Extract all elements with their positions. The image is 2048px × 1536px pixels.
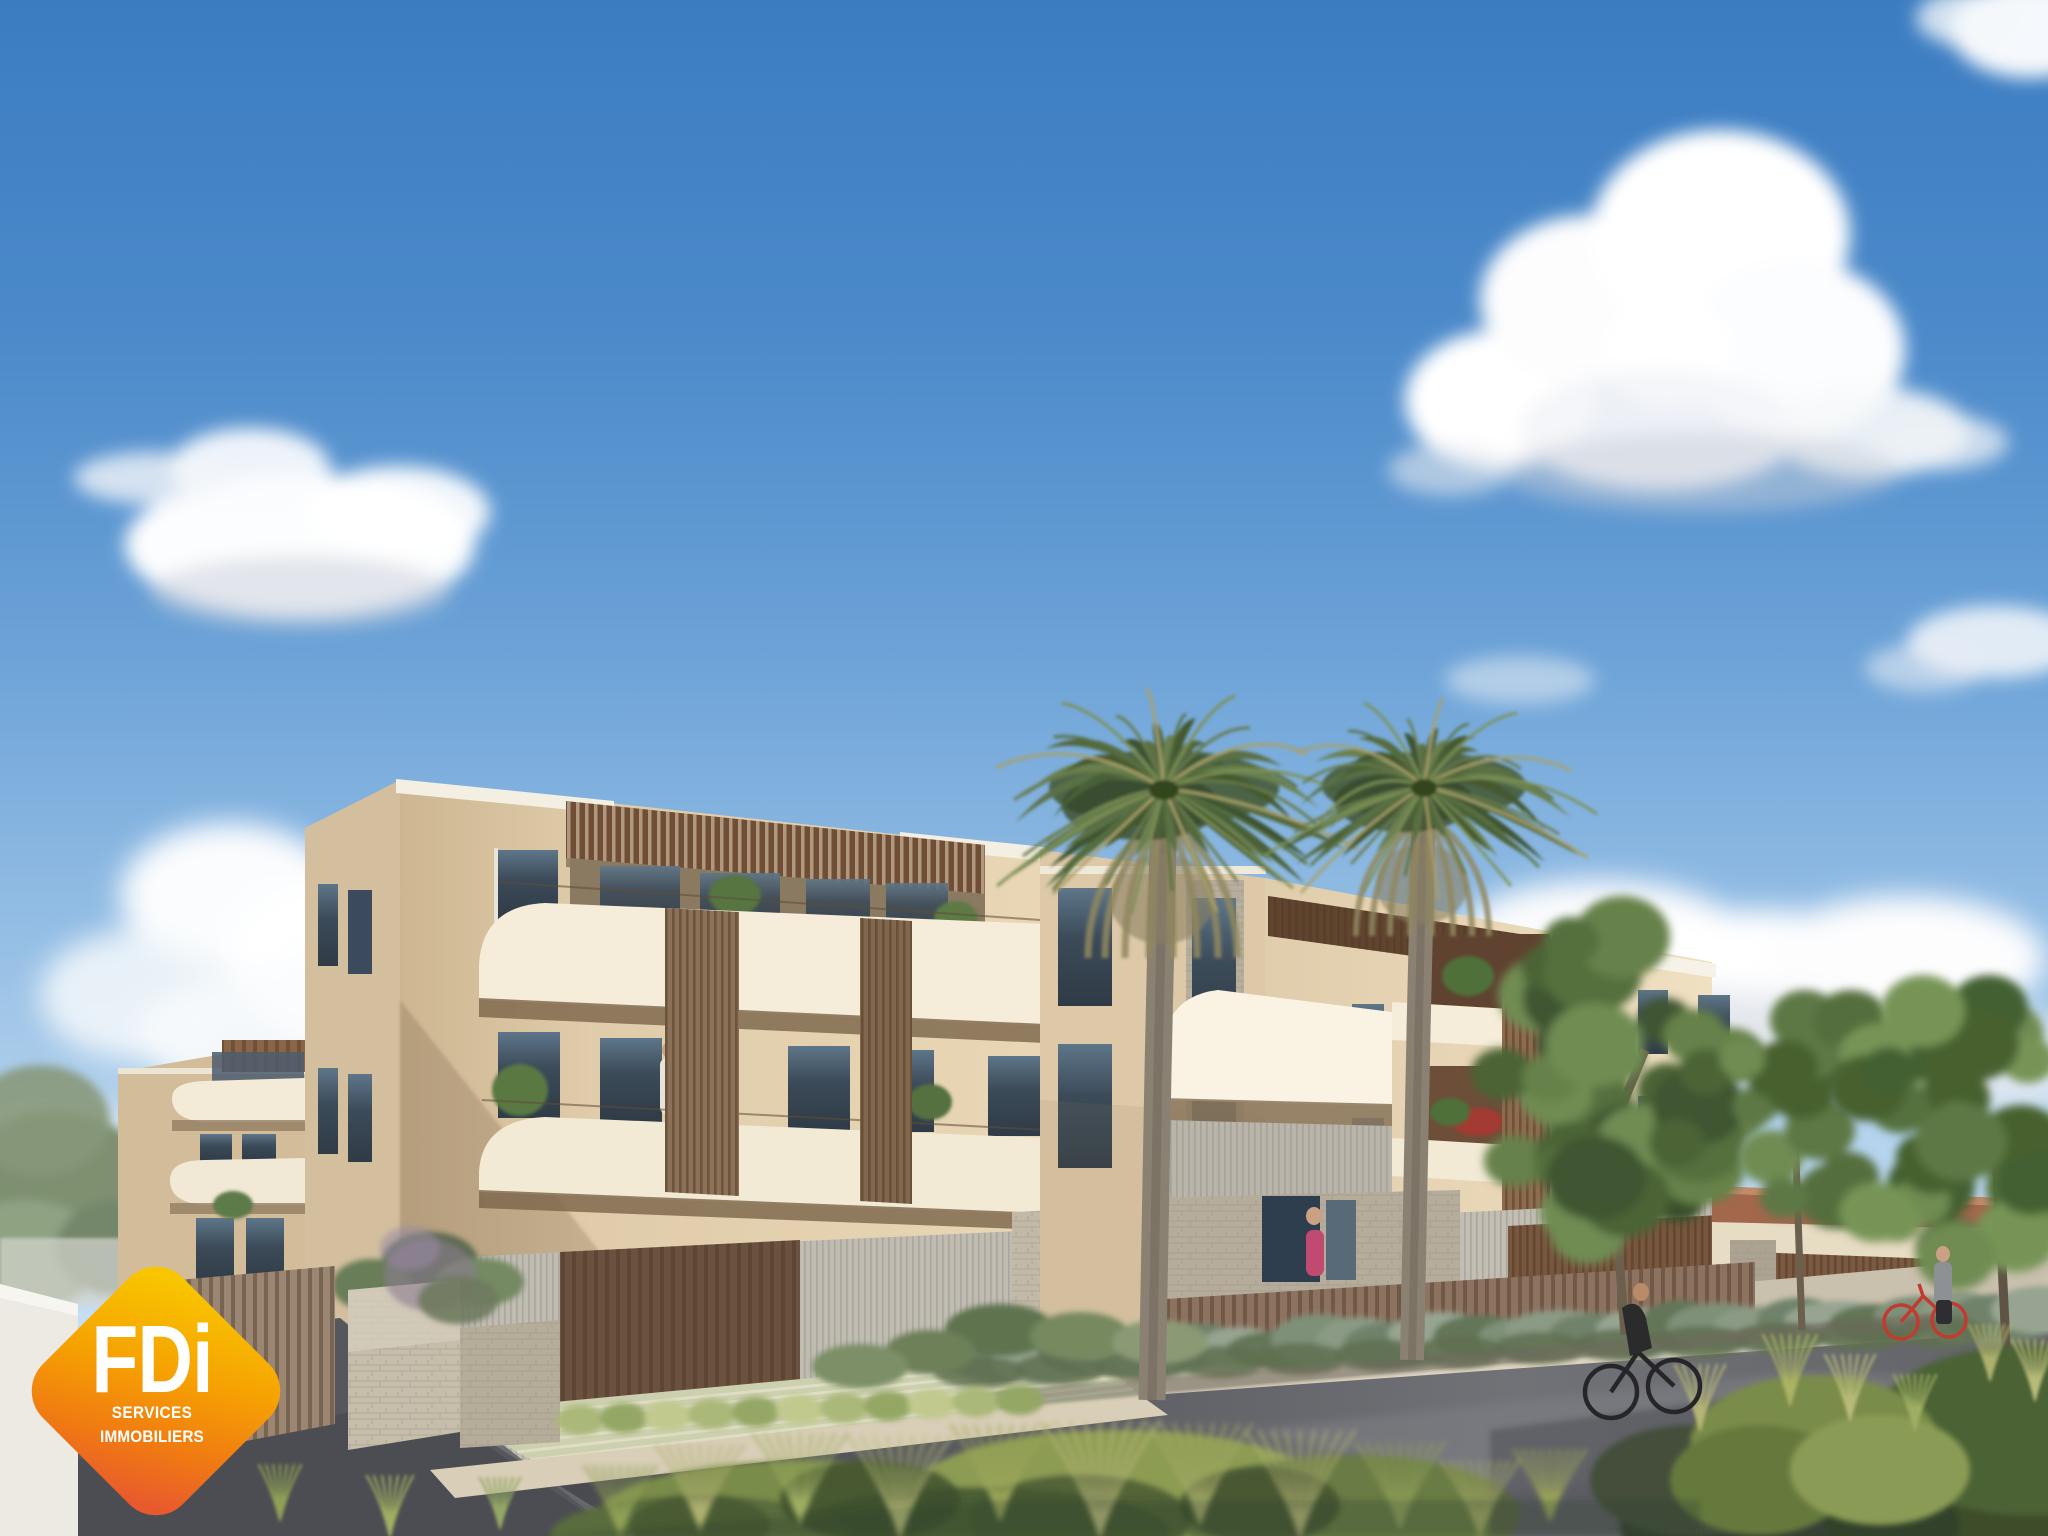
- svg-text:IMMOBILIERS: IMMOBILIERS: [100, 1427, 204, 1446]
- svg-text:SERVICES: SERVICES: [112, 1403, 193, 1422]
- svg-text:FDi: FDi: [91, 1306, 212, 1413]
